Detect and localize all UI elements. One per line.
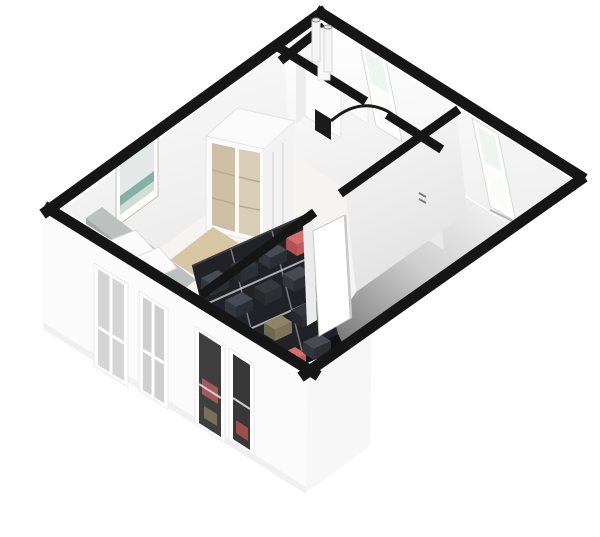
picture-art-lower [120,181,154,215]
utility-shelf [344,84,368,124]
boiler [296,58,368,138]
door-swing-arc [331,106,389,121]
facade-window-mullion [143,303,164,396]
facade-window-3 [195,326,225,443]
wardrobe [206,108,295,243]
window-pane [372,88,396,131]
wardrobe-top [206,108,295,149]
duvet [94,236,243,407]
facade-window-frame [94,263,128,387]
facade-window-frame [195,326,225,443]
rug-texture [246,270,270,282]
door-leaf [313,215,351,336]
wardrobe-glass-door [239,149,260,238]
facade-window-pane [98,269,124,381]
facade-window-mullion [233,398,250,409]
pipe-body [324,27,332,72]
window-sill [490,210,515,222]
living-room-window [472,118,516,222]
sheet-fold [93,236,199,312]
picture-art-teal-stripe [120,171,154,206]
boiler-top [296,58,341,86]
flue-pipe [324,25,332,72]
door-leaf-back [303,220,317,326]
interior [48,18,596,407]
wall-switch-mark [419,193,426,203]
wall-utility-end [284,29,321,58]
window-pane [365,52,389,94]
pipe-body [312,20,320,62]
wardrobe-panel-seams [273,143,283,238]
wall-northeast [321,13,580,176]
wall-utility-bedroom-a [283,50,362,99]
wardrobe-shelf-lines [212,170,260,210]
clothes-through-window [202,378,218,404]
facade-window-pane-dark [199,332,221,437]
rug-texture [232,285,254,295]
utility-bedroom-wall-face [284,54,444,250]
pillow [106,230,154,263]
facade-window-1 [94,263,128,387]
door-leaf-edge [345,215,351,318]
rug-texture [200,265,220,275]
picture-art [120,135,154,215]
utility-window [360,44,402,142]
flue-column [318,28,330,80]
closet-shelving-unit [192,214,344,400]
closet-living-wall-face [206,219,322,385]
right-facade-corner-shade [306,331,372,493]
facade-window-mullion [199,384,221,398]
pillow [129,247,177,281]
facade-window-pane-dark [233,354,250,450]
window-frame [360,44,402,142]
closet-shelves [202,254,328,346]
window-pane [486,168,510,213]
picture-frame-border [116,127,158,227]
facade-window-mullion [98,277,124,373]
clothes-stacks [196,230,331,400]
wardrobe-glass-door [212,143,235,232]
hall-open-door [303,215,351,336]
closet-dividers [231,231,302,369]
dark-door-leaf [315,109,331,140]
rug-texture [217,251,245,265]
window-pane [477,126,502,172]
rug-base [170,227,291,309]
utility-left-wall-face [286,32,326,158]
living-room-floor [309,196,573,360]
exterior-facades [43,176,589,494]
pipe-cap [312,18,320,22]
utility-floor [285,31,453,147]
duvet-folds [120,278,226,372]
wall-hall-living [344,112,455,191]
closet-frame [192,214,338,388]
wall-northwest [47,13,321,211]
headboard-top [86,207,196,292]
bedroom-floor [48,135,455,372]
facade-window-frame [229,348,254,456]
facade-window-frame [139,291,168,409]
facade-window-pane [143,297,164,403]
floorplan-render [0,0,600,537]
picture-frame [116,127,158,227]
floorplan-svg [0,0,600,537]
utility-door [315,106,389,140]
boiler-flue-pipes [312,18,332,80]
wall-closet-living [205,215,311,292]
left-facade-bottom-shade [43,322,306,494]
closet-frame-rim [192,214,308,266]
wardrobe-end-panel [264,121,295,243]
facade-window-4 [229,348,254,456]
pipe-cap [324,25,332,29]
wall-southeast [305,180,580,374]
flue-pipe [312,18,320,62]
northwest-wall-face [52,18,326,326]
closet-base-shadow [222,334,344,400]
double-bed [86,207,243,407]
rug [170,227,291,309]
clothes-through-window [204,406,217,426]
boiler-front [305,58,341,138]
northeast-wall-face [316,18,596,278]
left-facade [43,211,308,494]
wall-utility-bedroom-b [391,117,438,147]
window-frame [472,118,516,222]
headboard-front [86,218,180,313]
hall-living-wall-face [346,117,467,292]
boiler-side [296,58,305,124]
wall-bands [47,13,580,374]
right-facade [306,176,589,493]
wardrobe-front [206,136,264,243]
wall-southwest [49,209,314,373]
facade-window-2 [139,291,168,409]
clothes-through-window [236,420,248,441]
